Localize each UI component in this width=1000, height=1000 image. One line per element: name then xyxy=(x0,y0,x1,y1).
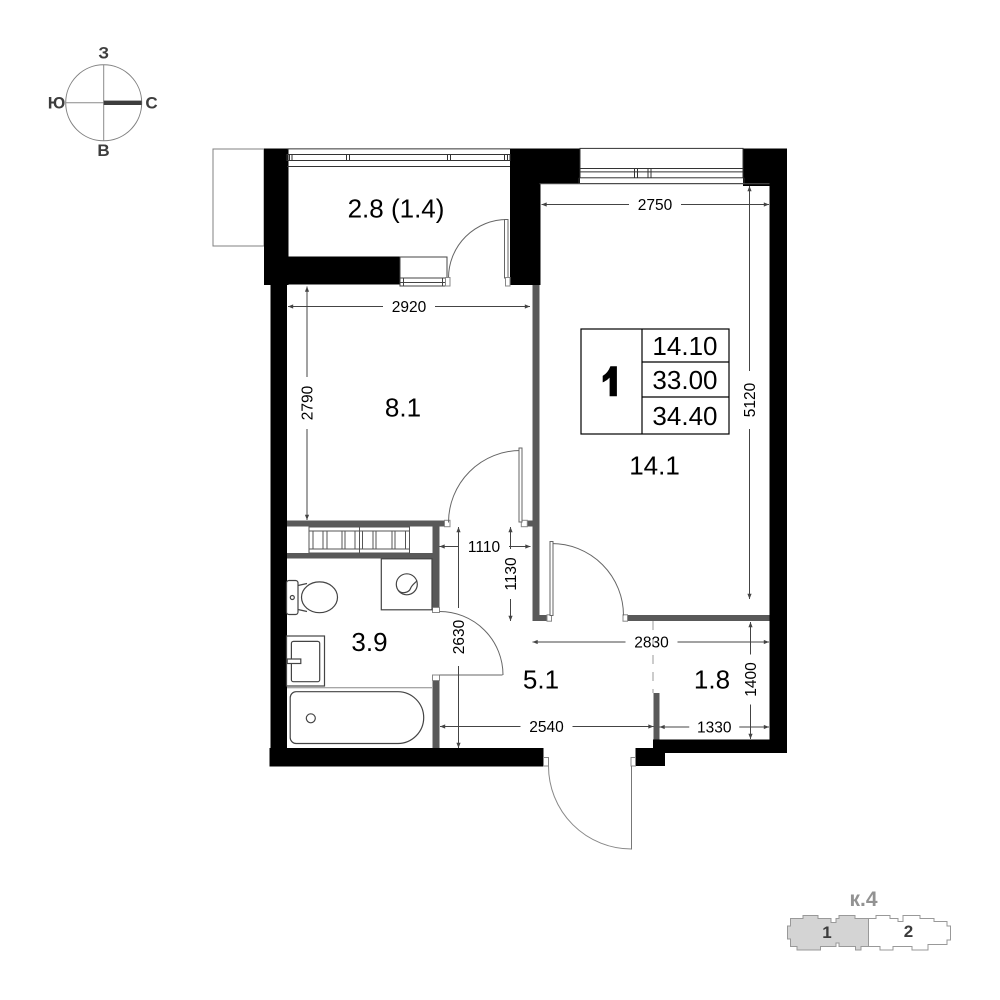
svg-text:1: 1 xyxy=(822,923,831,942)
svg-text:14.10: 14.10 xyxy=(652,331,717,361)
svg-text:3.9: 3.9 xyxy=(351,627,387,657)
svg-text:З: З xyxy=(98,44,109,63)
svg-text:1110: 1110 xyxy=(468,539,501,556)
svg-text:2750: 2750 xyxy=(638,197,673,214)
svg-text:к.4: к.4 xyxy=(849,888,877,911)
svg-text:Ю: Ю xyxy=(48,94,66,113)
svg-text:В: В xyxy=(97,141,109,160)
svg-text:2: 2 xyxy=(904,922,913,941)
svg-text:1130: 1130 xyxy=(503,557,520,591)
svg-text:5.1: 5.1 xyxy=(523,665,559,695)
svg-text:14.1: 14.1 xyxy=(629,451,680,481)
svg-text:2630: 2630 xyxy=(451,619,468,654)
svg-text:34.40: 34.40 xyxy=(652,401,717,431)
svg-text:2790: 2790 xyxy=(300,385,317,420)
svg-text:С: С xyxy=(145,94,157,113)
svg-text:8.1: 8.1 xyxy=(385,393,421,423)
svg-text:33.00: 33.00 xyxy=(652,365,717,395)
svg-text:2830: 2830 xyxy=(634,635,669,652)
svg-text:1330: 1330 xyxy=(697,720,732,737)
svg-text:1.8: 1.8 xyxy=(694,665,730,695)
svg-text:2920: 2920 xyxy=(392,299,427,316)
svg-text:1400: 1400 xyxy=(743,662,760,697)
svg-text:5120: 5120 xyxy=(742,382,759,417)
svg-text:2.8 (1.4): 2.8 (1.4) xyxy=(348,194,445,224)
svg-text:2540: 2540 xyxy=(529,719,564,736)
